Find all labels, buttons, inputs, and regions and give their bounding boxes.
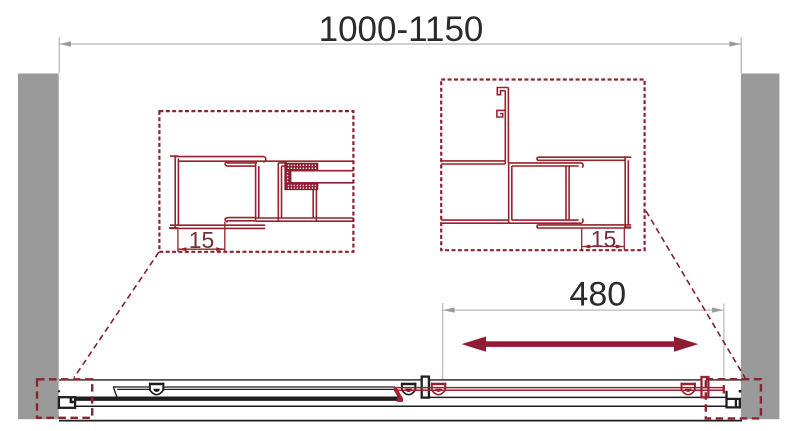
svg-text:15: 15 — [189, 227, 215, 253]
svg-text:480: 480 — [569, 276, 626, 314]
svg-text:1000-1150: 1000-1150 — [319, 10, 484, 49]
svg-text:15: 15 — [591, 226, 617, 252]
